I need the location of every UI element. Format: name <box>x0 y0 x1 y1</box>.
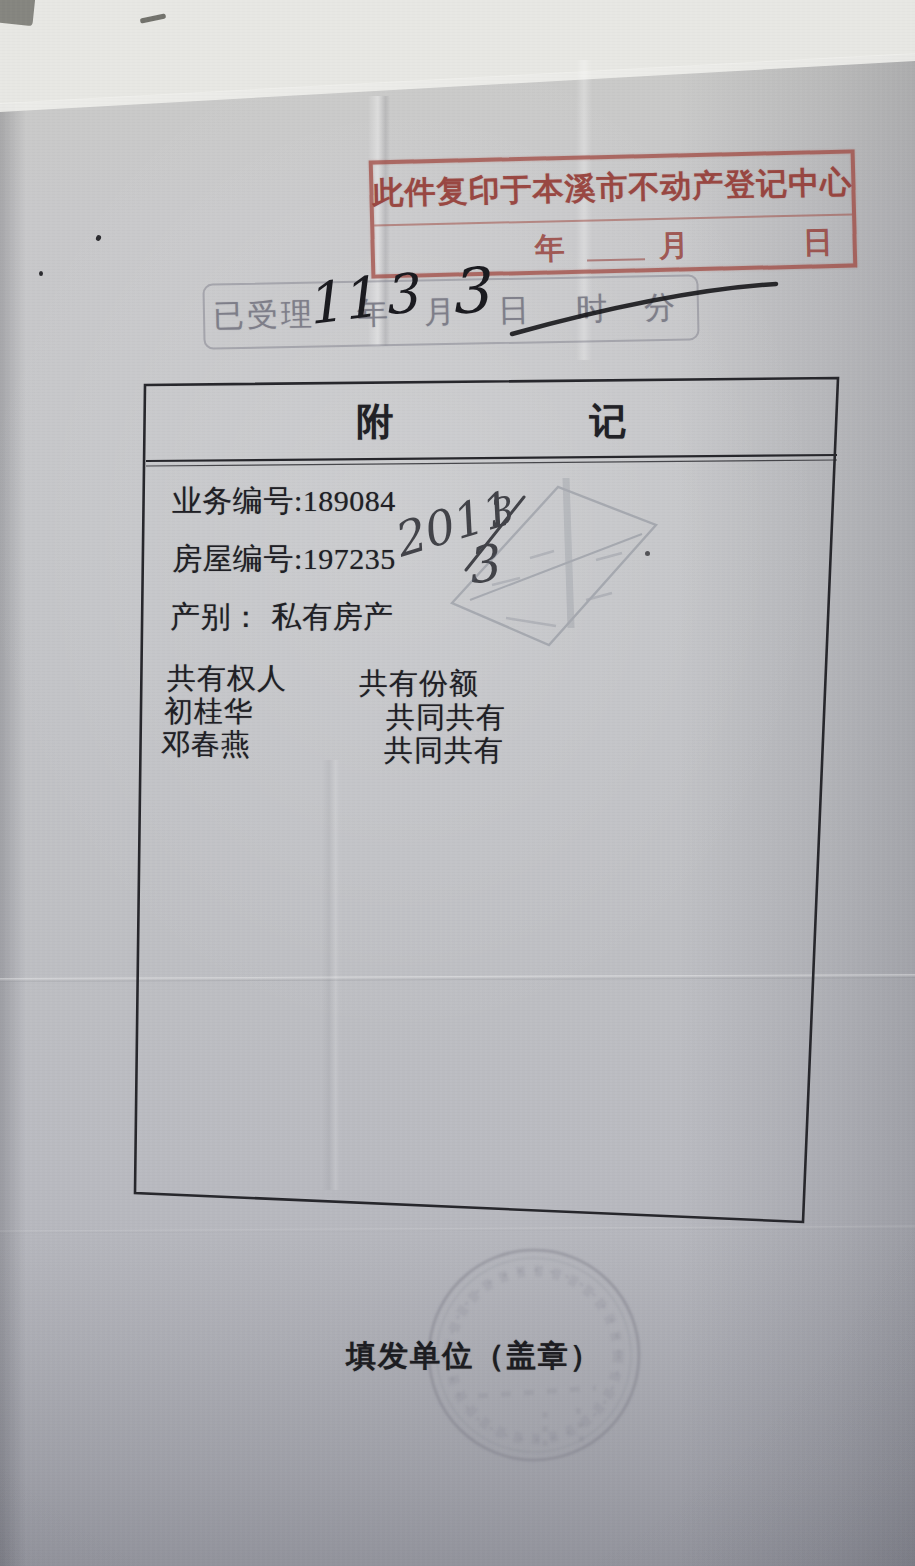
document-photo: 此件复印于本溪市不动产登记中心 年 月 日 已受理 年 月 日 时 分 11 3… <box>0 0 915 1566</box>
ink-speck <box>645 551 650 556</box>
copy-stamp-text: 此件复印于本溪市不动产登记中心 <box>373 154 852 215</box>
blank-underline <box>587 258 645 261</box>
business-number-row: 业务编号:189084 <box>172 481 396 522</box>
corner-shadow <box>0 0 35 26</box>
day-label: 日 <box>498 290 530 333</box>
co-owner-name: 邓春燕 <box>161 725 251 765</box>
house-number-row: 房屋编号:197235 <box>172 539 396 580</box>
handwritten-day: 3 <box>446 259 490 324</box>
minute-label: 分 <box>644 287 676 330</box>
business-number-label: 业务编号: <box>172 484 303 517</box>
handwritten-month: 3 <box>380 267 419 324</box>
property-category-value: 私有房产 <box>272 600 394 633</box>
accepted-stamp: 已受理 年 月 日 时 分 11 3 3 <box>202 274 699 350</box>
handwritten-year: 11 <box>302 269 380 333</box>
day-label: 日 <box>802 222 833 264</box>
issuer-unit-label: 填发单位（盖章） <box>346 1336 602 1377</box>
business-number-value: 189084 <box>303 484 396 517</box>
copy-stamp-divider <box>374 214 852 227</box>
month-label: 月 <box>658 225 689 267</box>
copy-source-stamp: 此件复印于本溪市不动产登记中心 年 月 日 <box>369 150 858 279</box>
house-number-label: 房屋编号: <box>172 542 303 575</box>
hour-label: 时 <box>576 288 608 331</box>
year-label: 年 <box>534 228 565 270</box>
property-category-label: 产别： <box>170 600 262 633</box>
co-owner-share: 共同共有 <box>384 731 504 771</box>
ink-speck <box>39 271 43 276</box>
annex-title-char: 附 <box>357 397 394 447</box>
house-number-value: 197235 <box>303 542 396 575</box>
annex-title-char: 记 <box>590 397 627 447</box>
property-category-row: 产别：私有房产 <box>170 597 394 638</box>
annex-title: 附 记 <box>145 397 838 447</box>
accepted-title: 已受理 <box>213 294 316 338</box>
